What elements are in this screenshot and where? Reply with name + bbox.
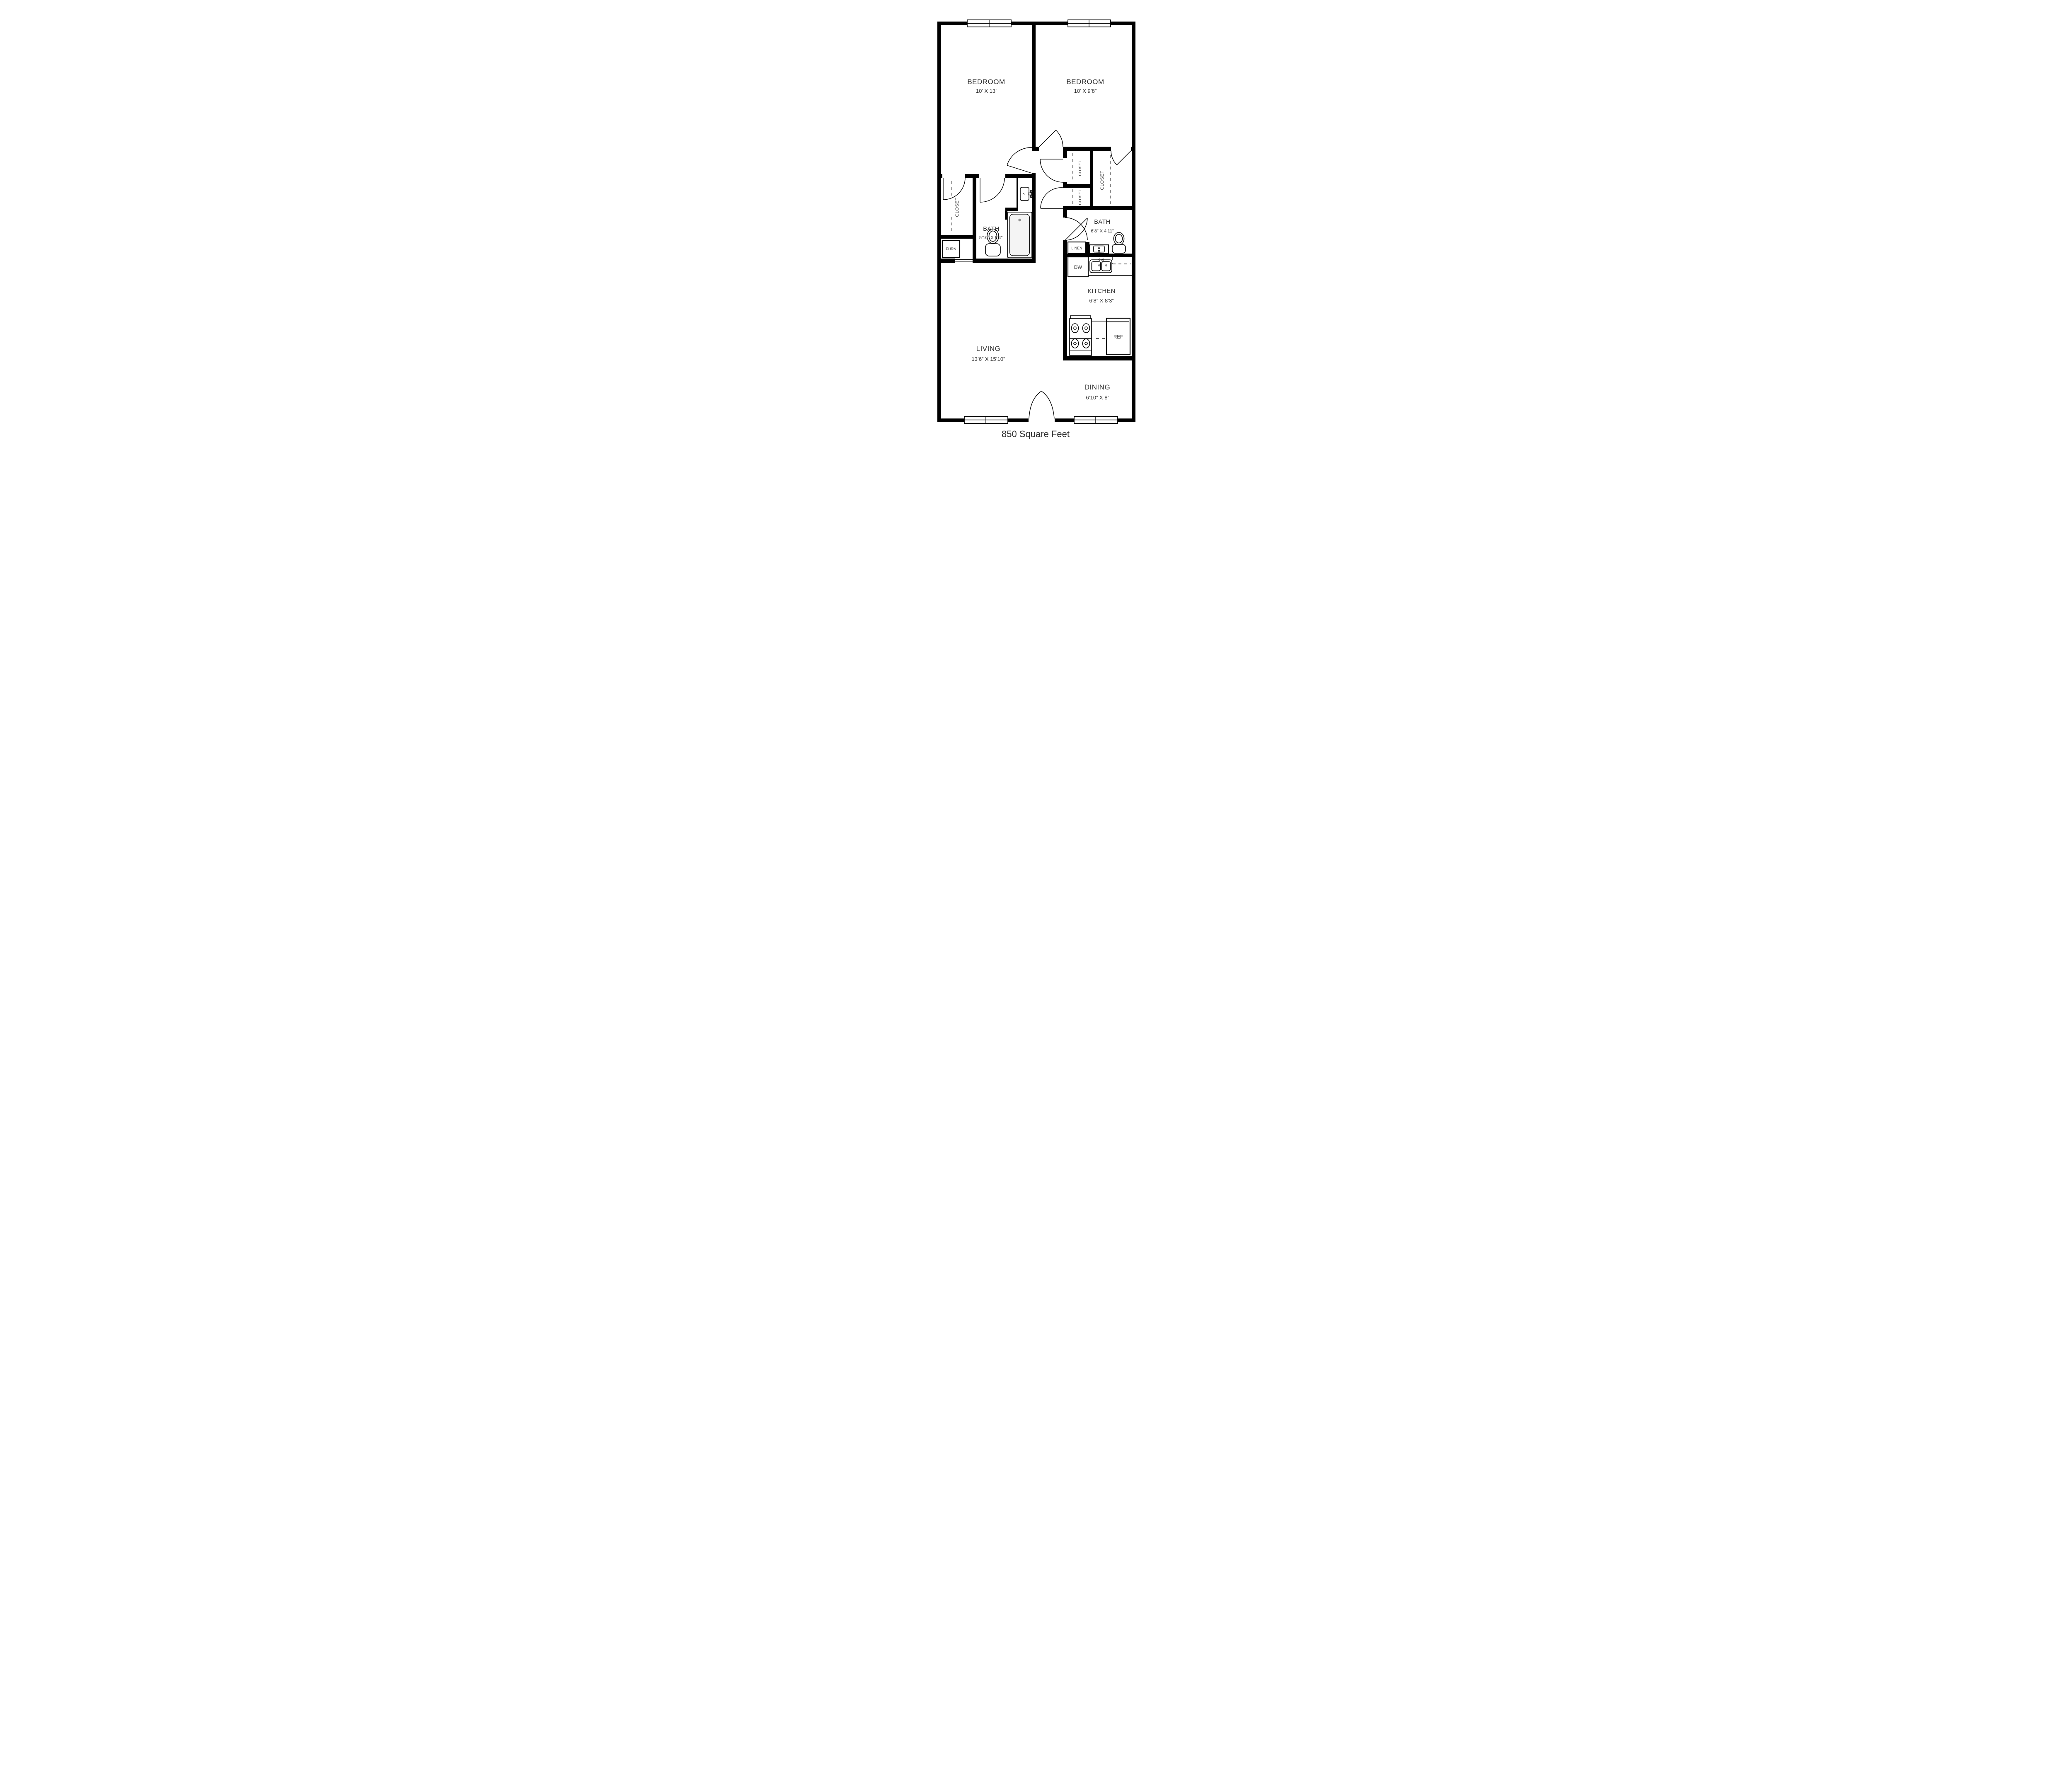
bath1-dims: 5’10” X 8’4”	[979, 235, 1003, 240]
wall-bottom-3	[1055, 418, 1074, 422]
interior-walls	[937, 25, 1135, 360]
bath1-sink	[1020, 187, 1032, 201]
bedroom1-dims: 10’ X 13’	[976, 88, 997, 94]
window-bedroom2	[1068, 20, 1111, 27]
kitchen-label: KITCHEN	[1087, 288, 1115, 295]
door-bedroom2	[1039, 130, 1063, 147]
bath1-tub	[1007, 212, 1032, 258]
bath1-label: BATH	[983, 226, 1000, 232]
wall-bedroom1-bottom-3	[1005, 174, 1036, 178]
wall-linen-divider	[1086, 242, 1089, 254]
linen-label: LINEN	[1071, 246, 1082, 250]
counter-dashed-outline	[1113, 257, 1131, 264]
wall-bedroom1-bottom-1	[937, 174, 942, 178]
bath2-fixtures: LINEN	[1068, 232, 1126, 254]
bedroom2-dims: 10’ X 9’8”	[1074, 88, 1097, 94]
closet-hall-top-label: CLOSET	[1078, 160, 1082, 176]
floor-plan-canvas: LINEN DW	[749, 0, 1323, 444]
wall-corridor-east-1	[1063, 151, 1067, 158]
wall-kitchen-bottom	[1063, 356, 1135, 360]
wall-corridor-east-2	[1063, 182, 1067, 188]
wall-bedroom2-bottom-1	[1032, 147, 1039, 151]
wall-between-bedrooms	[1032, 25, 1036, 148]
stove	[1070, 316, 1092, 355]
wall-closet1-bath1	[973, 178, 976, 259]
door-bath1	[980, 178, 1005, 202]
wall-tub-step	[1005, 211, 1007, 220]
window-dining	[1074, 416, 1118, 423]
window-living	[964, 416, 1008, 423]
bath2-label: BATH	[1094, 219, 1111, 225]
wall-small-big-closet	[1090, 151, 1093, 206]
kitchen-fixtures: DW	[1068, 257, 1132, 355]
door-closet1	[943, 178, 965, 200]
bath1-fixtures	[985, 187, 1032, 258]
door-bedroom1	[1007, 148, 1032, 173]
wall-bottom-1	[937, 418, 964, 422]
wall-closets-divider	[1067, 184, 1090, 188]
refrigerator-label: REF	[1113, 335, 1123, 340]
wall-closets-bottom	[1063, 206, 1135, 210]
wall-vanity-thin	[1017, 178, 1018, 208]
dishwasher: DW	[1068, 257, 1088, 277]
wall-closet1-bottom	[937, 235, 976, 239]
wall-top-1	[937, 22, 967, 25]
dishwasher-label: DW	[1074, 265, 1082, 270]
bedroom1-label: BEDROOM	[967, 78, 1005, 86]
closet-bedroom1-label: CLOSET	[955, 197, 960, 217]
wall-right	[1132, 22, 1135, 422]
wall-vanity-shelf	[1005, 208, 1018, 211]
bedroom2-label: BEDROOM	[1066, 78, 1104, 86]
furnace-label: FURN	[946, 247, 956, 251]
wall-kitchen-top	[1067, 254, 1135, 257]
total-area-label: 850 Square Feet	[1002, 429, 1070, 439]
wall-bedroom2-bottom-3	[1131, 147, 1135, 151]
dining-dims: 6’10” X 8’	[1086, 394, 1109, 401]
wall-living-top-1	[937, 259, 955, 263]
bath1-toilet	[985, 229, 1000, 256]
floor-plan-page: LINEN DW	[749, 0, 1323, 444]
wall-top-2	[1011, 22, 1068, 25]
bath2-dims: 6’8” X 4’11”	[1091, 229, 1114, 234]
wall-bedroom1-bottom-2	[965, 174, 979, 178]
door-closet-bedroom2	[1111, 151, 1131, 165]
window-bedroom1	[967, 20, 1011, 27]
wall-left	[937, 22, 941, 422]
door-bath2	[1065, 218, 1087, 240]
closet-hall-bottom-label: CLOSET	[1078, 189, 1082, 205]
dining-label: DINING	[1084, 383, 1111, 391]
wall-bottom-2	[1008, 418, 1029, 422]
wall-living-top-2	[973, 259, 1036, 263]
refrigerator: REF	[1106, 318, 1130, 354]
linen-closet: LINEN	[1068, 242, 1086, 254]
door-closet-hall-bottom	[1041, 188, 1063, 208]
bath2-toilet	[1112, 232, 1126, 253]
door-entry	[1029, 391, 1054, 418]
wall-kitchen-west	[1063, 240, 1067, 360]
living-dims: 13’6” X 15’10”	[972, 356, 1005, 362]
furnace-louver-door	[955, 258, 973, 264]
kitchen-sink	[1090, 259, 1112, 273]
kitchen-dims: 6’8” X 8’3”	[1089, 297, 1113, 304]
living-label: LIVING	[976, 345, 1001, 353]
wall-bedroom2-bottom-2	[1063, 147, 1111, 151]
bath2-sink	[1089, 245, 1109, 254]
closet-bedroom2-label: CLOSET	[1100, 170, 1105, 190]
furnace: FURN	[942, 240, 960, 258]
wall-bedroom1-east-lower	[1032, 173, 1036, 263]
door-closet-hall-top	[1040, 159, 1063, 182]
